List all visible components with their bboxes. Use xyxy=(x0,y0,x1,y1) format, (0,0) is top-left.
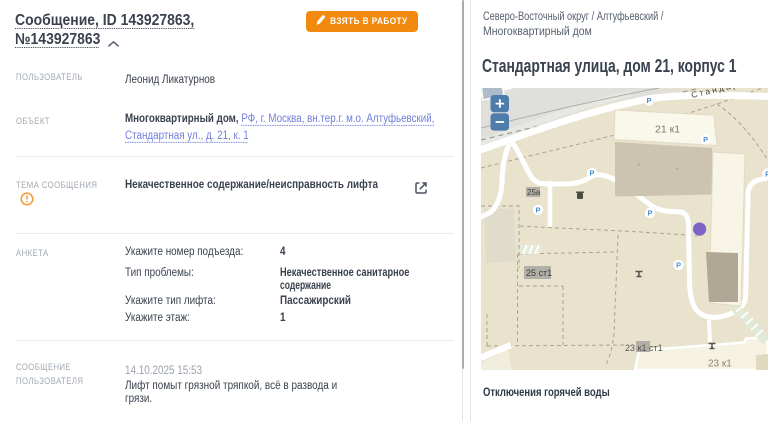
svg-text:21 к1: 21 к1 xyxy=(655,124,680,136)
svg-text:23 к1: 23 к1 xyxy=(708,359,732,370)
svg-text:25а: 25а xyxy=(527,188,541,197)
svg-text:23 к1 ст1: 23 к1 ст1 xyxy=(625,343,663,353)
svg-text:P: P xyxy=(589,169,594,178)
svg-text:P: P xyxy=(535,206,540,215)
svg-text:P: P xyxy=(647,209,652,218)
svg-text:P: P xyxy=(703,135,708,144)
svg-text:25 ст1: 25 ст1 xyxy=(526,268,552,278)
svg-text:P: P xyxy=(676,261,681,270)
svg-text:P: P xyxy=(646,96,651,105)
